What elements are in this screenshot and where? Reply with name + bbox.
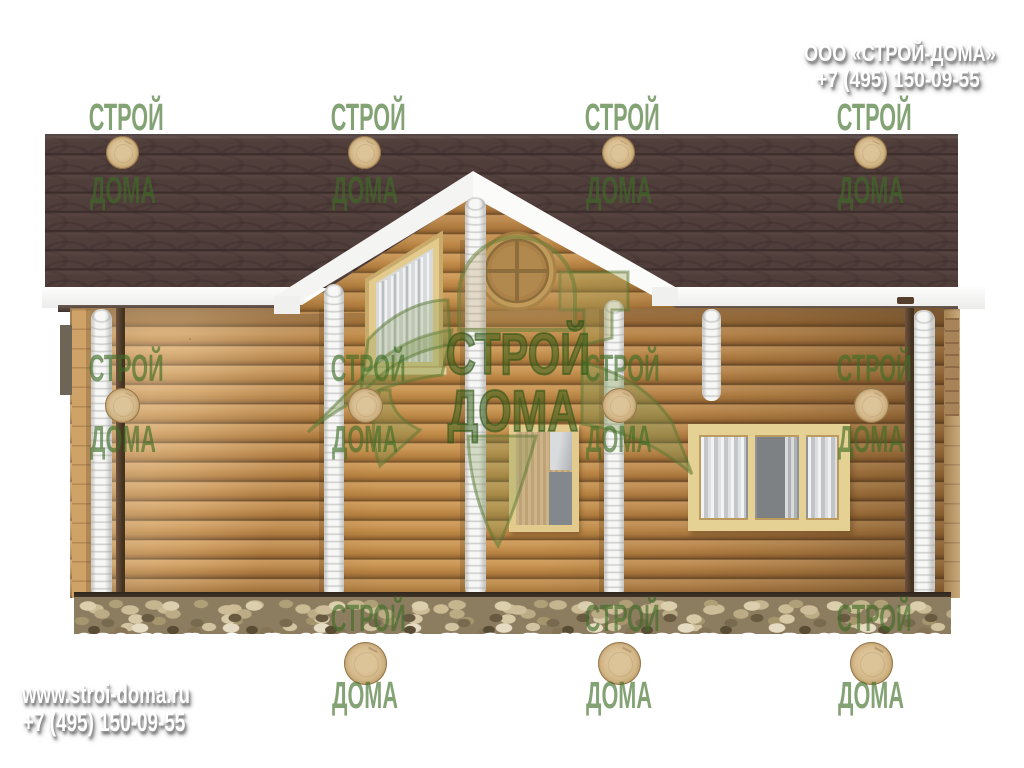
- svg-text:СТРОЙ: СТРОЙ: [446, 321, 590, 386]
- svg-text:ДОМА: ДОМА: [448, 379, 579, 444]
